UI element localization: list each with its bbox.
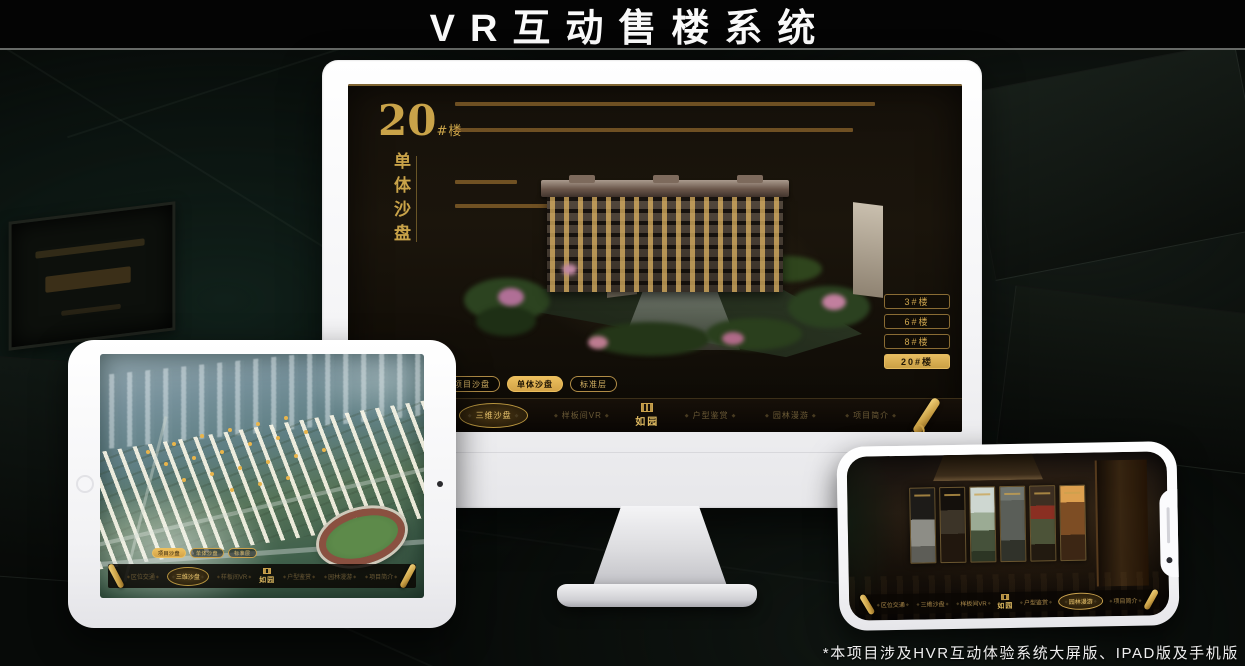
bg-plaque	[9, 201, 176, 350]
scroll-menu-icon[interactable]	[399, 563, 417, 589]
tablet-bottom-nav: 区位交通 三维沙盘 样板间VR 如园 户型鉴赏 园林漫游 项目简介	[108, 564, 416, 588]
phone-notch	[1159, 489, 1179, 577]
scroll-panel-gallery	[909, 485, 1086, 564]
tab-single-sandbox[interactable]: 单体沙盘	[190, 548, 224, 558]
speaker-slot-icon	[1167, 507, 1171, 543]
page-title: VR互动售楼系统	[415, 0, 831, 52]
nav-item-showroom-vr[interactable]: 样板间VR	[216, 572, 253, 581]
floor-tabs: 项目沙盘 单体沙盘 标准层	[444, 376, 617, 392]
tablet-frame: 项目沙盘 单体沙盘 标准层 区位交通 三维沙盘 样板间VR 如园 户型鉴赏 园林…	[68, 340, 456, 628]
tablet-camera-icon	[437, 481, 443, 487]
scroll-menu-icon[interactable]	[107, 563, 125, 589]
building-model	[470, 160, 870, 372]
logo-text: 如园	[259, 575, 275, 585]
logo-text: 如园	[997, 600, 1013, 610]
headline-building-number: 20#楼	[378, 96, 462, 145]
logo-seal-icon	[263, 568, 271, 574]
gallery-panel[interactable]	[939, 487, 966, 563]
scroll-menu-icon[interactable]	[859, 593, 875, 615]
headline-rule	[416, 156, 417, 242]
building-button[interactable]: 6#楼	[884, 314, 950, 329]
nav-item-3d-sandbox[interactable]: 三维沙盘	[915, 599, 949, 609]
gallery-panel[interactable]	[969, 486, 996, 562]
model-building	[547, 180, 783, 292]
logo-seal-icon	[641, 403, 653, 412]
gallery-panel[interactable]	[1059, 485, 1086, 561]
lit-doorway	[1095, 460, 1149, 587]
tablet-home-button[interactable]	[76, 475, 94, 493]
nav-item-3d-sandbox[interactable]: 三维沙盘	[167, 567, 209, 586]
gallery-panel[interactable]	[1029, 485, 1056, 561]
tab-project-sandbox[interactable]: 项目沙盘	[152, 548, 186, 558]
bg-map-line	[67, 44, 353, 139]
scroll-menu-icon[interactable]	[1143, 588, 1159, 610]
nav-item-showroom-vr[interactable]: 样板间VR	[551, 410, 613, 421]
bg-collage-tile	[959, 41, 1245, 281]
tab-single-sandbox[interactable]: 单体沙盘	[507, 376, 563, 392]
logo-text: 如园	[635, 413, 659, 428]
gallery-panel[interactable]	[999, 486, 1026, 562]
nav-item-project-intro[interactable]: 项目简介	[1108, 595, 1142, 605]
building-button[interactable]: 3#楼	[884, 294, 950, 309]
gallery-panel[interactable]	[909, 487, 936, 563]
phone-screen: 区位交通 三维沙盘 样板间VR 如园 户型鉴赏 园林漫游 项目简介	[847, 451, 1170, 621]
building-number-badges	[146, 450, 150, 454]
brand-logo: 如园	[635, 403, 659, 428]
nav-item-garden-tour[interactable]: 园林漫游	[1058, 592, 1102, 610]
scroll-menu-icon[interactable]	[912, 396, 941, 432]
brand-logo: 如园	[259, 568, 275, 585]
footnote: *本项目涉及HVR互动体验系统大屏版、IPAD版及手机版	[823, 642, 1239, 663]
nav-item-location[interactable]: 区位交通	[126, 572, 160, 581]
monitor-stand-neck	[593, 506, 727, 586]
phone-camera-icon	[1166, 557, 1172, 563]
nav-item-unit-plans[interactable]: 户型鉴赏	[682, 410, 740, 421]
headline-number-text: 20	[378, 96, 436, 145]
title-strip: VR互动售楼系统	[0, 0, 1245, 50]
model-facade	[547, 197, 783, 292]
headline-vertical-title: 单体沙盘	[388, 152, 413, 262]
model-roof	[541, 180, 789, 197]
nav-item-project-intro[interactable]: 项目简介	[842, 410, 900, 421]
tablet-floor-tabs: 项目沙盘 单体沙盘 标准层	[152, 548, 257, 558]
building-selector: 3#楼 6#楼 8#楼 20#楼	[880, 294, 950, 374]
mist-overlay	[304, 354, 424, 424]
nav-item-garden-tour[interactable]: 园林漫游	[323, 572, 357, 581]
nav-item-location[interactable]: 区位交通	[876, 599, 910, 609]
pavilion-roof	[933, 453, 1043, 481]
building-button-active[interactable]: 20#楼	[884, 354, 950, 369]
nav-item-unit-plans[interactable]: 户型鉴赏	[282, 572, 316, 581]
logo-seal-icon	[1001, 593, 1009, 599]
gold-topline	[348, 84, 962, 86]
nav-item-garden-tour[interactable]: 园林漫游	[762, 410, 820, 421]
tab-standard-floor[interactable]: 标准层	[570, 376, 617, 392]
nav-item-showroom-vr[interactable]: 样板间VR	[955, 598, 992, 608]
brand-logo: 如园	[997, 593, 1013, 610]
building-button[interactable]: 8#楼	[884, 334, 950, 349]
tab-standard-floor[interactable]: 标准层	[228, 548, 257, 558]
nav-item-project-intro[interactable]: 项目简介	[364, 572, 398, 581]
phone-frame: 区位交通 三维沙盘 样板间VR 如园 户型鉴赏 园林漫游 项目简介	[836, 441, 1179, 631]
nav-item-3d-sandbox[interactable]: 三维沙盘	[459, 403, 529, 428]
monitor-stand-base	[557, 584, 757, 607]
nav-item-unit-plans[interactable]: 户型鉴赏	[1019, 597, 1053, 607]
tablet-screen: 项目沙盘 单体沙盘 标准层 区位交通 三维沙盘 样板间VR 如园 户型鉴赏 园林…	[100, 354, 424, 598]
